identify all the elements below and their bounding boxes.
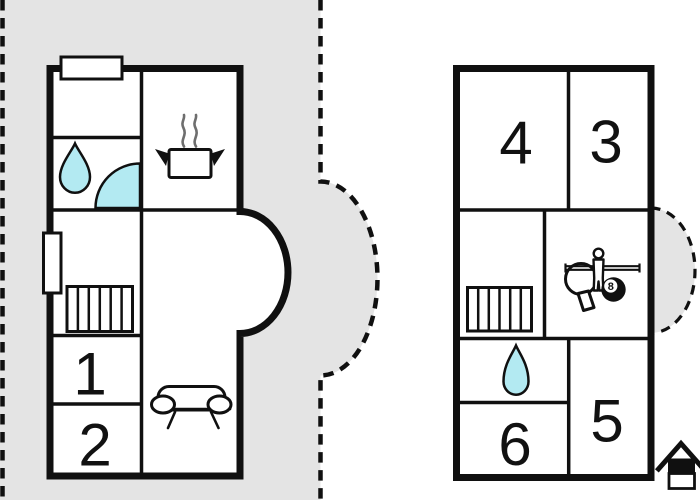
- foosball-player-head: [594, 249, 604, 259]
- room-number-3: 3: [589, 109, 622, 176]
- floorplan-image: 1 2 8 4 3 5: [0, 0, 700, 500]
- window: [44, 233, 62, 293]
- floorplan-canvas: 1 2 8 4 3 5: [0, 0, 700, 500]
- stairs-icon: [67, 287, 133, 332]
- balcony-area: [651, 208, 695, 333]
- billiard-ball-number: 8: [608, 281, 614, 293]
- room-number-1: 1: [73, 341, 106, 408]
- room-number-5: 5: [590, 388, 623, 455]
- stairs-icon-right: [468, 288, 532, 332]
- right-floorplan: 8 4 3 5 6: [457, 69, 652, 479]
- foosball-player-icon: [594, 249, 604, 291]
- billiard-ball-icon: 8: [601, 277, 625, 301]
- sofa-armrest-left: [152, 396, 175, 413]
- house-upper-half: [668, 459, 695, 474]
- room-number-2: 2: [78, 412, 111, 479]
- room-number-4: 4: [499, 110, 532, 177]
- room-number-6: 6: [498, 411, 531, 478]
- chimney: [61, 57, 122, 79]
- table-tennis-icon: [566, 264, 597, 295]
- pot-body: [169, 150, 211, 178]
- house-lower-half: [669, 474, 695, 489]
- house-icon: [659, 444, 700, 489]
- sofa-armrest-right: [208, 396, 231, 413]
- balcony-fill: [651, 208, 695, 333]
